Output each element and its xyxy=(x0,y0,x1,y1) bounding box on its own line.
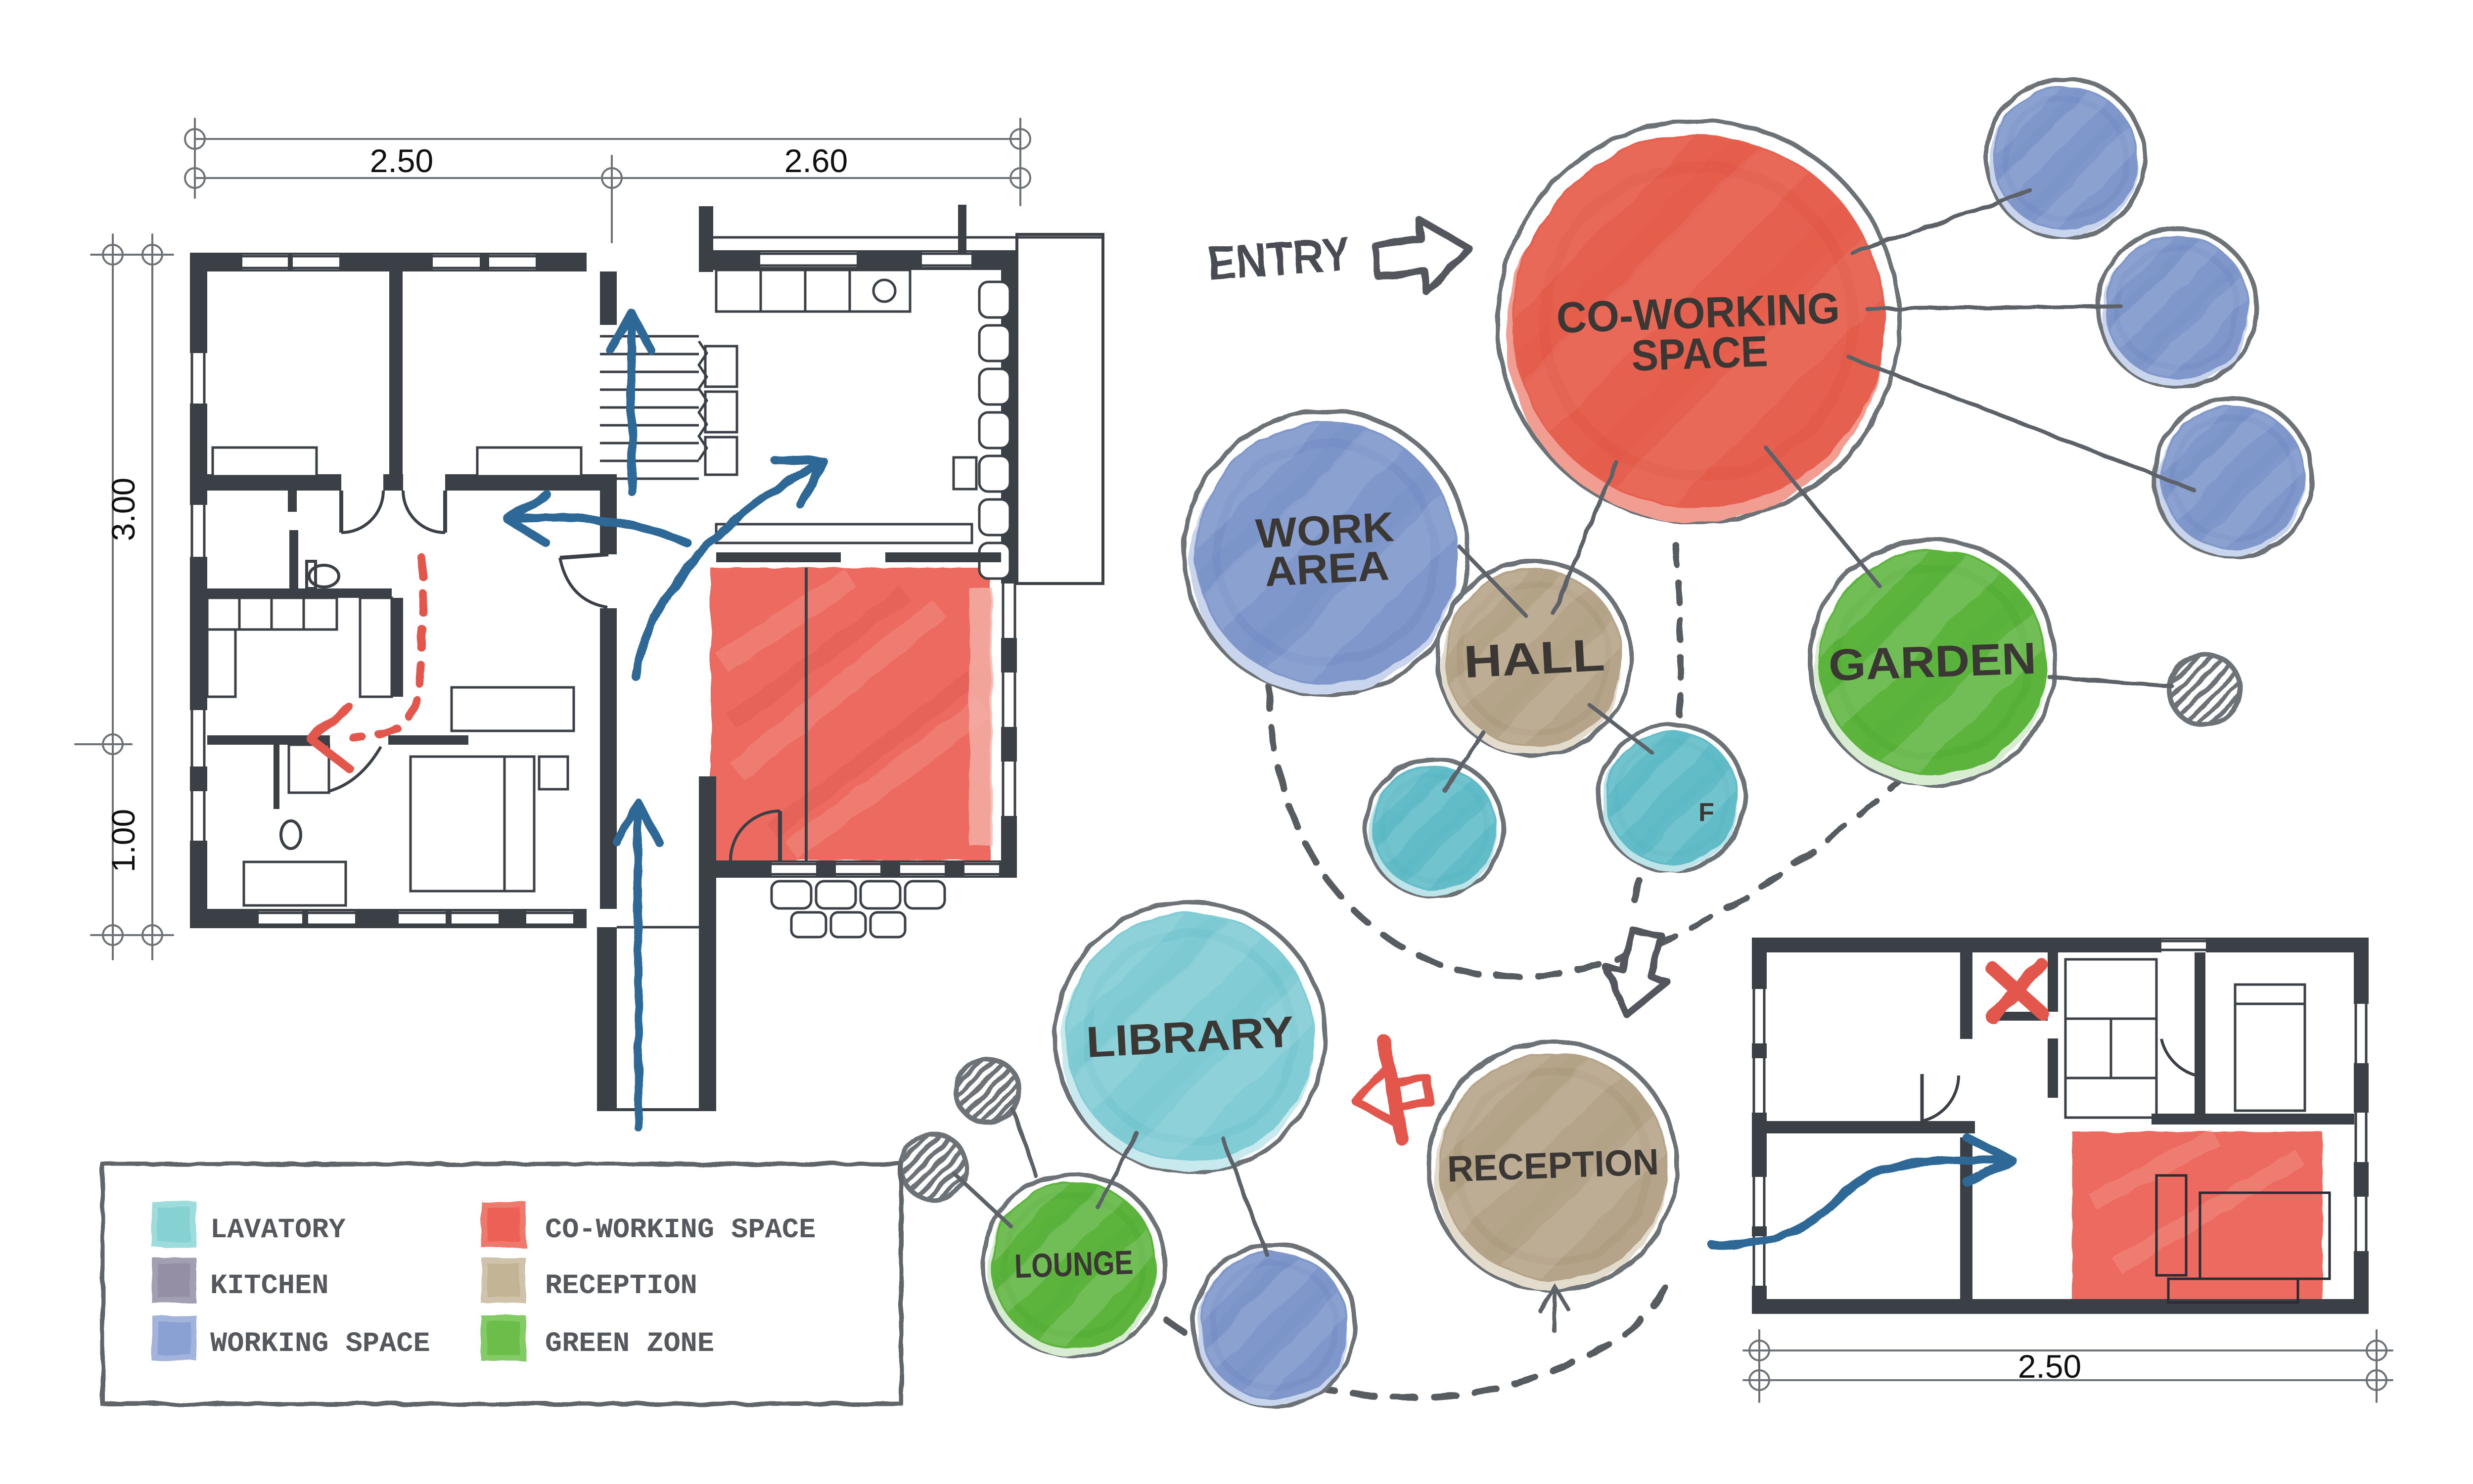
svg-text:RECEPTION: RECEPTION xyxy=(1447,1141,1660,1190)
svg-text:LAVATORY: LAVATORY xyxy=(210,1214,346,1246)
svg-text:1.00: 1.00 xyxy=(105,809,141,872)
svg-text:AREA: AREA xyxy=(1263,542,1390,595)
svg-text:SPACE: SPACE xyxy=(1631,326,1769,380)
svg-text:LOUNGE: LOUNGE xyxy=(1014,1244,1134,1285)
svg-text:GARDEN: GARDEN xyxy=(1828,634,2037,691)
svg-text:2.60: 2.60 xyxy=(784,142,848,179)
svg-text:GREEN ZONE: GREEN ZONE xyxy=(545,1328,714,1360)
svg-text:WORKING SPACE: WORKING SPACE xyxy=(210,1328,430,1360)
svg-text:2.50: 2.50 xyxy=(2018,1348,2081,1385)
svg-text:2.50: 2.50 xyxy=(370,142,433,179)
svg-text:RECEPTION: RECEPTION xyxy=(545,1270,697,1302)
svg-text:KITCHEN: KITCHEN xyxy=(210,1270,328,1302)
svg-text:HALL: HALL xyxy=(1463,630,1606,688)
svg-text:CO-WORKING SPACE: CO-WORKING SPACE xyxy=(545,1214,816,1246)
svg-text:3.00: 3.00 xyxy=(105,478,141,541)
svg-text:ENTRY: ENTRY xyxy=(1205,227,1352,290)
svg-text:F: F xyxy=(1698,798,1714,827)
